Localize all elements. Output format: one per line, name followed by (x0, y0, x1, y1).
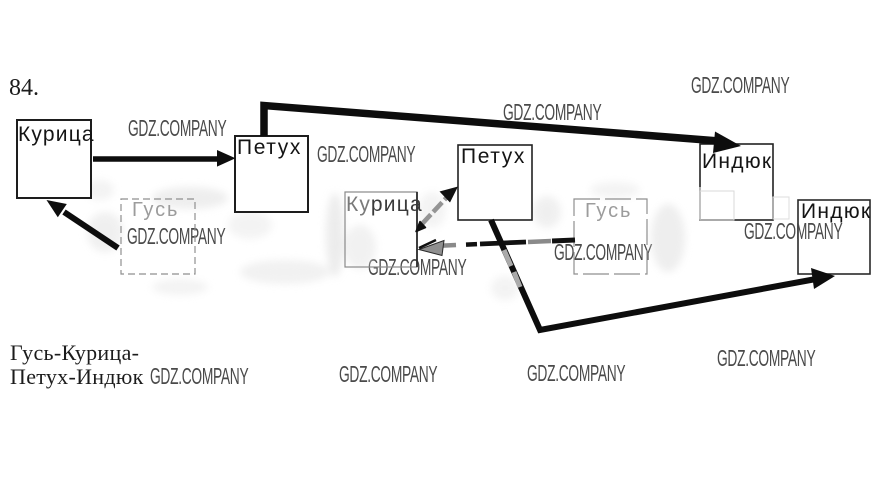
svg-text:GDZ.COMPANY: GDZ.COMPANY (150, 365, 249, 390)
svg-text:GDZ.COMPANY: GDZ.COMPANY (691, 74, 790, 99)
svg-text:GDZ.COMPANY: GDZ.COMPANY (744, 220, 843, 245)
svg-text:Гусь: Гусь (585, 200, 632, 222)
svg-text:Петух-Индюк: Петух-Индюк (10, 364, 144, 389)
svg-text:GDZ.COMPANY: GDZ.COMPANY (339, 363, 438, 388)
svg-text:Петух: Петух (237, 136, 302, 159)
svg-text:GDZ.COMPANY: GDZ.COMPANY (128, 117, 227, 142)
svg-text:GDZ.COMPANY: GDZ.COMPANY (127, 225, 226, 250)
svg-text:Гусь: Гусь (132, 199, 179, 221)
svg-text:GDZ.COMPANY: GDZ.COMPANY (554, 241, 653, 266)
svg-text:84.: 84. (9, 75, 39, 101)
svg-text:GDZ.COMPANY: GDZ.COMPANY (317, 143, 416, 168)
svg-text:Гусь-Курица-: Гусь-Курица- (10, 340, 139, 365)
svg-text:Курица: Курица (346, 193, 423, 216)
svg-text:Курица: Курица (18, 123, 95, 146)
svg-text:GDZ.COMPANY: GDZ.COMPANY (717, 347, 816, 372)
svg-text:GDZ.COMPANY: GDZ.COMPANY (527, 362, 626, 387)
svg-text:Индюк: Индюк (702, 150, 772, 173)
svg-text:Петух: Петух (461, 145, 526, 168)
